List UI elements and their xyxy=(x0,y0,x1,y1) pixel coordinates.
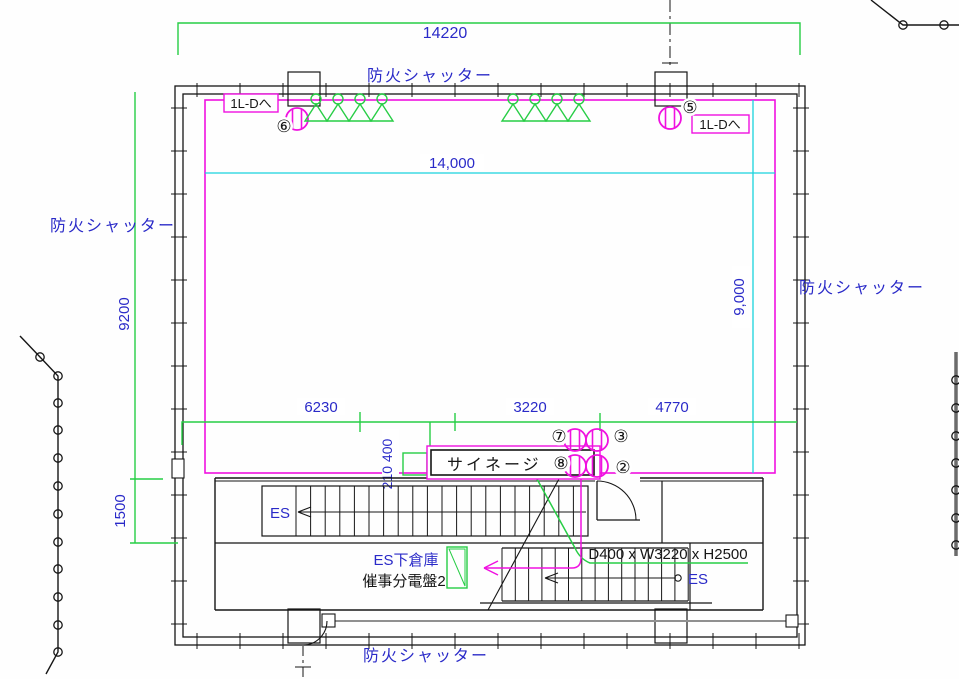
span-right-value: 4770 xyxy=(655,399,688,416)
layout-grid-lines xyxy=(205,100,775,473)
wall-ticks xyxy=(171,83,809,649)
stair-enclosure xyxy=(215,477,763,610)
inner-depth-value: 9,000 xyxy=(731,278,748,316)
signage-offset-value: 210 400 xyxy=(379,438,395,489)
rack-icon xyxy=(552,94,562,104)
rack-icon xyxy=(371,104,393,121)
to-1ld-box-right: 1L-Dへ xyxy=(692,115,749,133)
escalator-label-lower: ES xyxy=(688,571,708,588)
fire-shutter-label-right: 防火シャッター xyxy=(799,279,925,297)
rack-icon xyxy=(327,104,349,121)
pier-bottom-right xyxy=(655,609,687,643)
panel-feed-leader xyxy=(484,472,581,575)
wall-box-left xyxy=(172,459,184,478)
overall-width-value: 14220 xyxy=(423,25,468,42)
overall-width-dimension: 14220 xyxy=(178,23,800,55)
landing-door xyxy=(597,481,640,520)
pier-bottom-left xyxy=(288,609,320,643)
callout-2: ② xyxy=(615,458,630,477)
wall-box-right xyxy=(786,615,798,627)
outer-walls xyxy=(171,83,809,649)
floor-plan-drawing: 14220 9200 1500 6230 3220 xyxy=(0,0,959,679)
event-panel-label: 催事分電盤2 xyxy=(362,573,445,590)
callout-numbers: ⑥ ⑤ ⑦ ③ ⑧ ② xyxy=(275,98,699,477)
depth-main-value: 9200 xyxy=(116,297,133,330)
span-left-value: 6230 xyxy=(304,399,337,416)
handrail-line xyxy=(20,336,58,674)
left-depth-dimension: 9200 1500 xyxy=(112,92,178,543)
rack-icon xyxy=(530,94,540,104)
callout-8: ⑧ xyxy=(553,454,568,473)
handrail-chain-lines xyxy=(20,0,959,674)
fire-shutter-label-left: 防火シャッター xyxy=(50,217,176,235)
rack-icon xyxy=(333,94,343,104)
callout-7: ⑦ xyxy=(551,427,566,446)
rack-icon xyxy=(355,94,365,104)
rack-icon xyxy=(568,104,590,121)
rack-symbols xyxy=(305,94,590,121)
signage-anchor-box xyxy=(403,453,427,475)
downlight-icon xyxy=(659,107,681,129)
callout-6: ⑥ xyxy=(276,117,291,136)
to-1ld-right-label: 1L-Dへ xyxy=(699,117,740,132)
signage-label: サイネージ xyxy=(447,456,542,474)
rack-icon xyxy=(502,104,524,121)
escalator-label-upper: ES xyxy=(270,505,290,522)
rack-icon xyxy=(524,104,546,121)
floor-plan-page: 14220 9200 1500 6230 3220 xyxy=(0,0,959,679)
depth-lower-value: 1500 xyxy=(112,494,129,527)
callout-3: ③ xyxy=(613,427,628,446)
to-1ld-left-label: 1L-Dへ xyxy=(230,96,271,111)
rack-icon xyxy=(546,104,568,121)
signage-size-label: D400 x W3220 x H2500 xyxy=(588,546,747,563)
rack-icon xyxy=(349,104,371,121)
event-panel-symbol xyxy=(447,547,467,588)
inner-width-value: 14,000 xyxy=(429,155,475,172)
fire-shutter-label-bottom: 防火シャッター xyxy=(363,647,489,665)
es-under-storage-label: ES下倉庫 xyxy=(373,552,438,569)
pier-top-left xyxy=(288,72,320,106)
span-center-value: 3220 xyxy=(513,399,546,416)
sales-area-hatch xyxy=(205,100,775,473)
rack-icon xyxy=(574,94,584,104)
centerlines xyxy=(295,0,678,677)
rack-icon xyxy=(508,94,518,104)
callout-5: ⑤ xyxy=(682,98,697,117)
door-swing-arc xyxy=(597,481,636,520)
rack-icon xyxy=(377,94,387,104)
fire-shutter-label-top: 防火シャッター xyxy=(367,67,493,85)
lower-escalator-arrow xyxy=(545,573,681,583)
to-1ld-box-left: 1L-Dへ xyxy=(224,94,278,112)
wall-box-bottom-left xyxy=(322,614,335,627)
